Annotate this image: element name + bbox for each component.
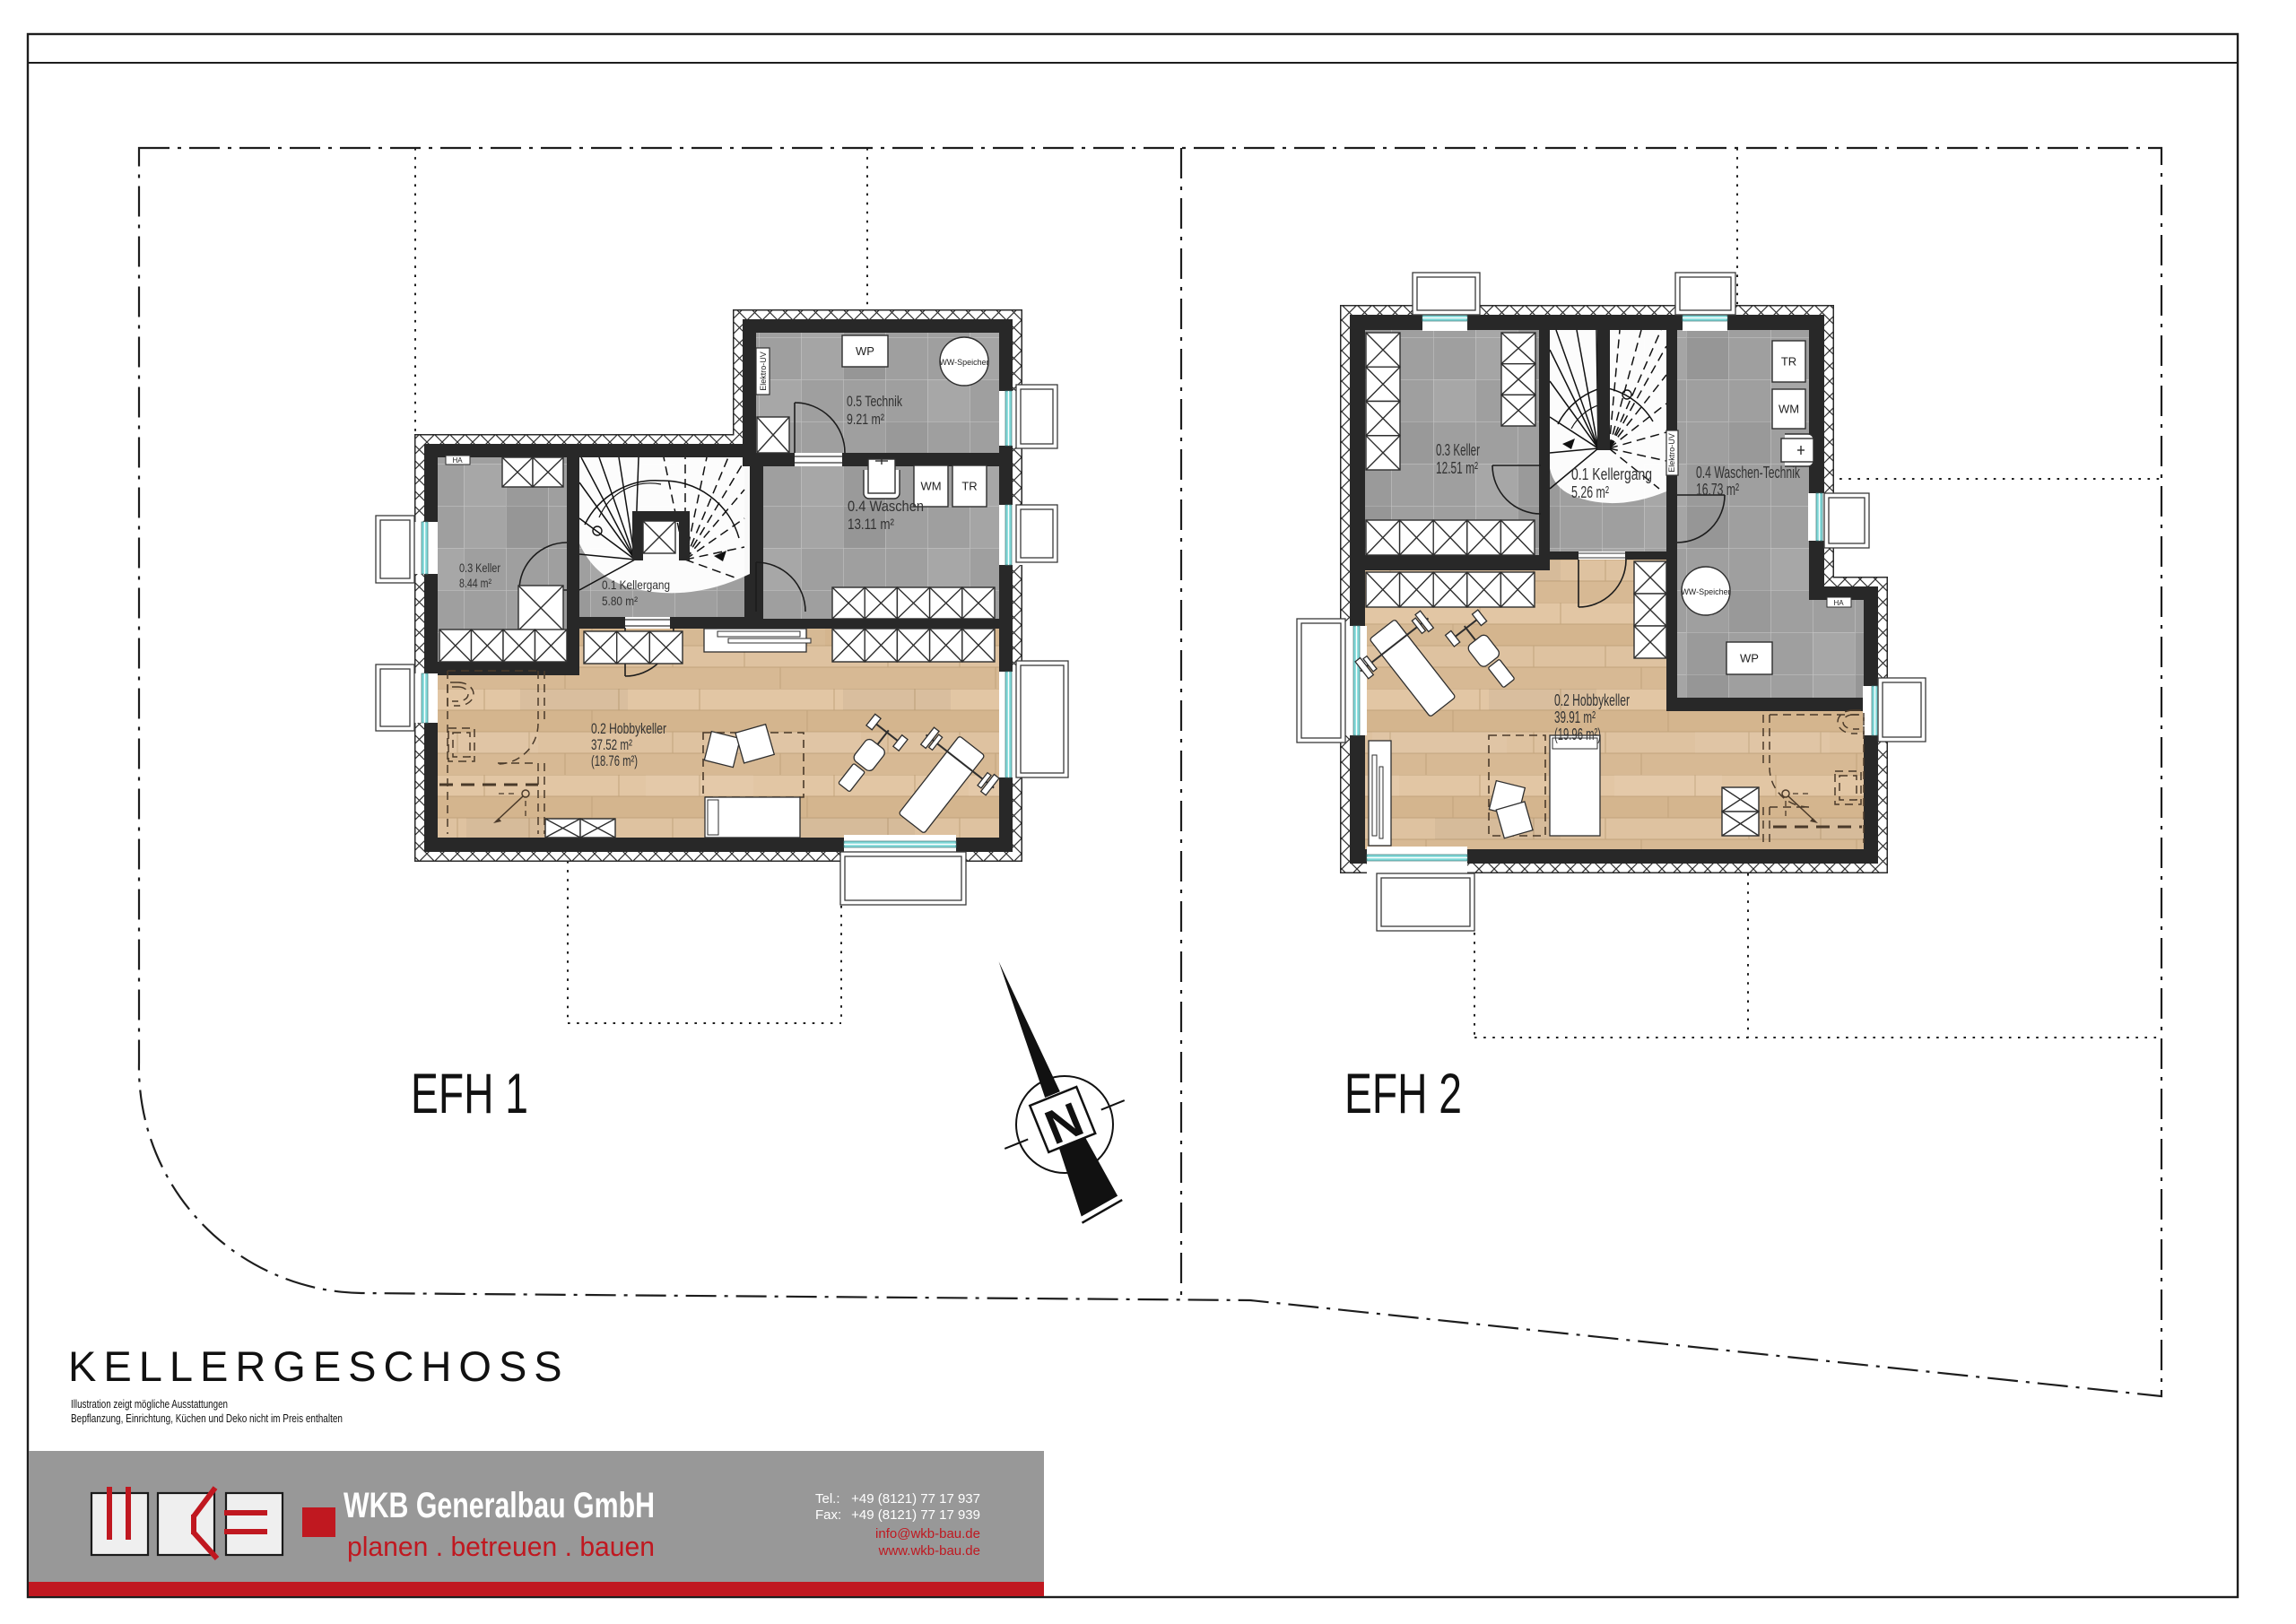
svg-text:0.4 Waschen-Technik: 0.4 Waschen-Technik (1696, 463, 1800, 482)
svg-text:39.91 m²: 39.91 m² (1554, 708, 1596, 726)
svg-text:WKB Generalbau GmbH: WKB Generalbau GmbH (344, 1486, 655, 1525)
svg-text:KELLERGESCHOSS: KELLERGESCHOSS (68, 1342, 570, 1390)
svg-text:planen . betreuen . bauen: planen . betreuen . bauen (347, 1531, 655, 1562)
svg-text:+49 (8121) 77 17 937: +49 (8121) 77 17 937 (851, 1491, 980, 1507)
svg-text:EFH 2: EFH 2 (1344, 1063, 1462, 1125)
svg-text:5.26 m²: 5.26 m² (1571, 482, 1609, 501)
svg-text:WM: WM (1779, 403, 1799, 416)
svg-text:(19.96 m²): (19.96 m²) (1554, 725, 1601, 743)
svg-text:Elektro-UV: Elektro-UV (1667, 433, 1676, 473)
svg-text:+49 (8121) 77 17 939: +49 (8121) 77 17 939 (851, 1507, 980, 1523)
svg-text:Elektro-UV: Elektro-UV (759, 352, 768, 391)
svg-text:Fax:: Fax: (815, 1507, 841, 1523)
svg-text:TR: TR (1781, 355, 1796, 369)
svg-text:0.3 Keller: 0.3 Keller (459, 560, 500, 575)
svg-text:13.11 m²: 13.11 m² (848, 516, 894, 533)
svg-text:0.2 Hobbykeller: 0.2 Hobbykeller (591, 720, 666, 737)
svg-text:8.44 m²: 8.44 m² (459, 576, 491, 590)
svg-text:0.1 Kellergang: 0.1 Kellergang (1571, 465, 1652, 483)
svg-text:Tel.:: Tel.: (815, 1491, 840, 1507)
svg-text:TR: TR (961, 480, 977, 493)
svg-text:www.wkb-bau.de: www.wkb-bau.de (878, 1543, 980, 1559)
svg-text:HA: HA (452, 456, 463, 465)
svg-text:16.73 m²: 16.73 m² (1696, 480, 1739, 499)
svg-text:WP: WP (856, 344, 874, 358)
svg-text:WP: WP (1740, 652, 1759, 665)
svg-text:HA: HA (1833, 599, 1844, 607)
svg-text:9.21 m²: 9.21 m² (847, 411, 884, 428)
svg-text:info@wkb-bau.de: info@wkb-bau.de (875, 1526, 980, 1541)
svg-text:0.4 Waschen: 0.4 Waschen (848, 498, 924, 515)
svg-text:EFH 1: EFH 1 (411, 1063, 528, 1125)
svg-text:Illustration zeigt mögliche Au: Illustration zeigt mögliche Ausstattunge… (71, 1397, 228, 1411)
svg-text:0.5 Technik: 0.5 Technik (847, 393, 902, 410)
svg-text:12.51 m²: 12.51 m² (1436, 458, 1478, 477)
svg-text:0.3 Keller: 0.3 Keller (1436, 440, 1480, 459)
svg-text:Bepflanzung, Einrichtung, Küch: Bepflanzung, Einrichtung, Küchen und Dek… (71, 1411, 343, 1425)
svg-text:0.1 Kellergang: 0.1 Kellergang (602, 578, 670, 592)
svg-text:37.52 m²: 37.52 m² (591, 736, 632, 753)
svg-text:5.80 m²: 5.80 m² (602, 594, 638, 608)
svg-text:WW-Speicher: WW-Speicher (939, 358, 988, 367)
svg-text:(18.76 m²): (18.76 m²) (591, 752, 638, 769)
svg-text:WW-Speicher: WW-Speicher (1681, 587, 1730, 596)
svg-text:WM: WM (920, 480, 941, 493)
svg-text:0.2 Hobbykeller: 0.2 Hobbykeller (1554, 690, 1630, 709)
